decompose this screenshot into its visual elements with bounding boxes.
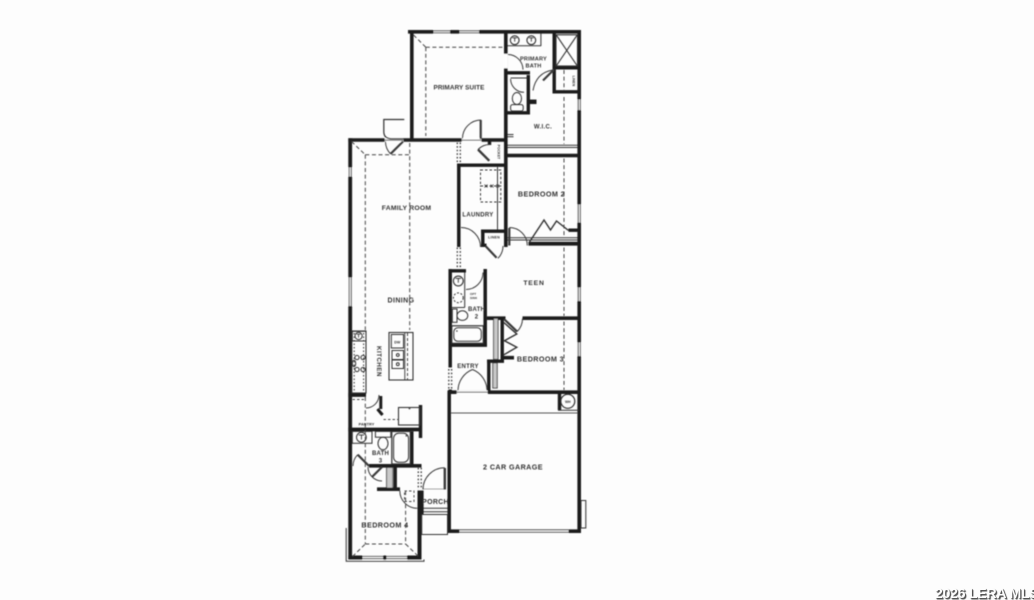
svg-text:3: 3 — [379, 459, 383, 465]
svg-text:LINEN: LINEN — [571, 76, 575, 87]
svg-text:LAUNDRY: LAUNDRY — [462, 213, 493, 219]
svg-text:PORCH: PORCH — [422, 499, 449, 506]
svg-text:POCKET: POCKET — [496, 145, 500, 161]
svg-text:BATH: BATH — [372, 451, 389, 457]
svg-text:DW: DW — [394, 341, 401, 345]
svg-text:BEDROOM 4: BEDROOM 4 — [361, 521, 408, 530]
svg-text:PANTRY: PANTRY — [359, 423, 375, 427]
svg-text:TEEN: TEEN — [523, 280, 544, 287]
svg-text:KITCHEN: KITCHEN — [375, 346, 382, 377]
svg-text:DINING: DINING — [388, 298, 415, 305]
svg-text:BATH: BATH — [468, 307, 485, 313]
svg-text:2: 2 — [475, 315, 479, 321]
svg-text:BATH: BATH — [526, 64, 542, 70]
svg-text:SINK: SINK — [470, 296, 478, 300]
svg-text:BEDROOM 2: BEDROOM 2 — [518, 190, 565, 199]
svg-text:FAMILY ROOM: FAMILY ROOM — [382, 205, 432, 212]
svg-text:WH: WH — [565, 400, 571, 404]
svg-text:W.I.C.: W.I.C. — [534, 125, 552, 131]
svg-text:ENTRY: ENTRY — [457, 364, 479, 370]
svg-text:2 CAR GARAGE: 2 CAR GARAGE — [483, 463, 543, 472]
svg-text:PRIMARY: PRIMARY — [520, 57, 547, 63]
svg-text:BEDROOM 3: BEDROOM 3 — [517, 355, 564, 364]
svg-text:PRIMARY SUITE: PRIMARY SUITE — [433, 85, 485, 92]
svg-text:LINEN: LINEN — [488, 236, 500, 240]
